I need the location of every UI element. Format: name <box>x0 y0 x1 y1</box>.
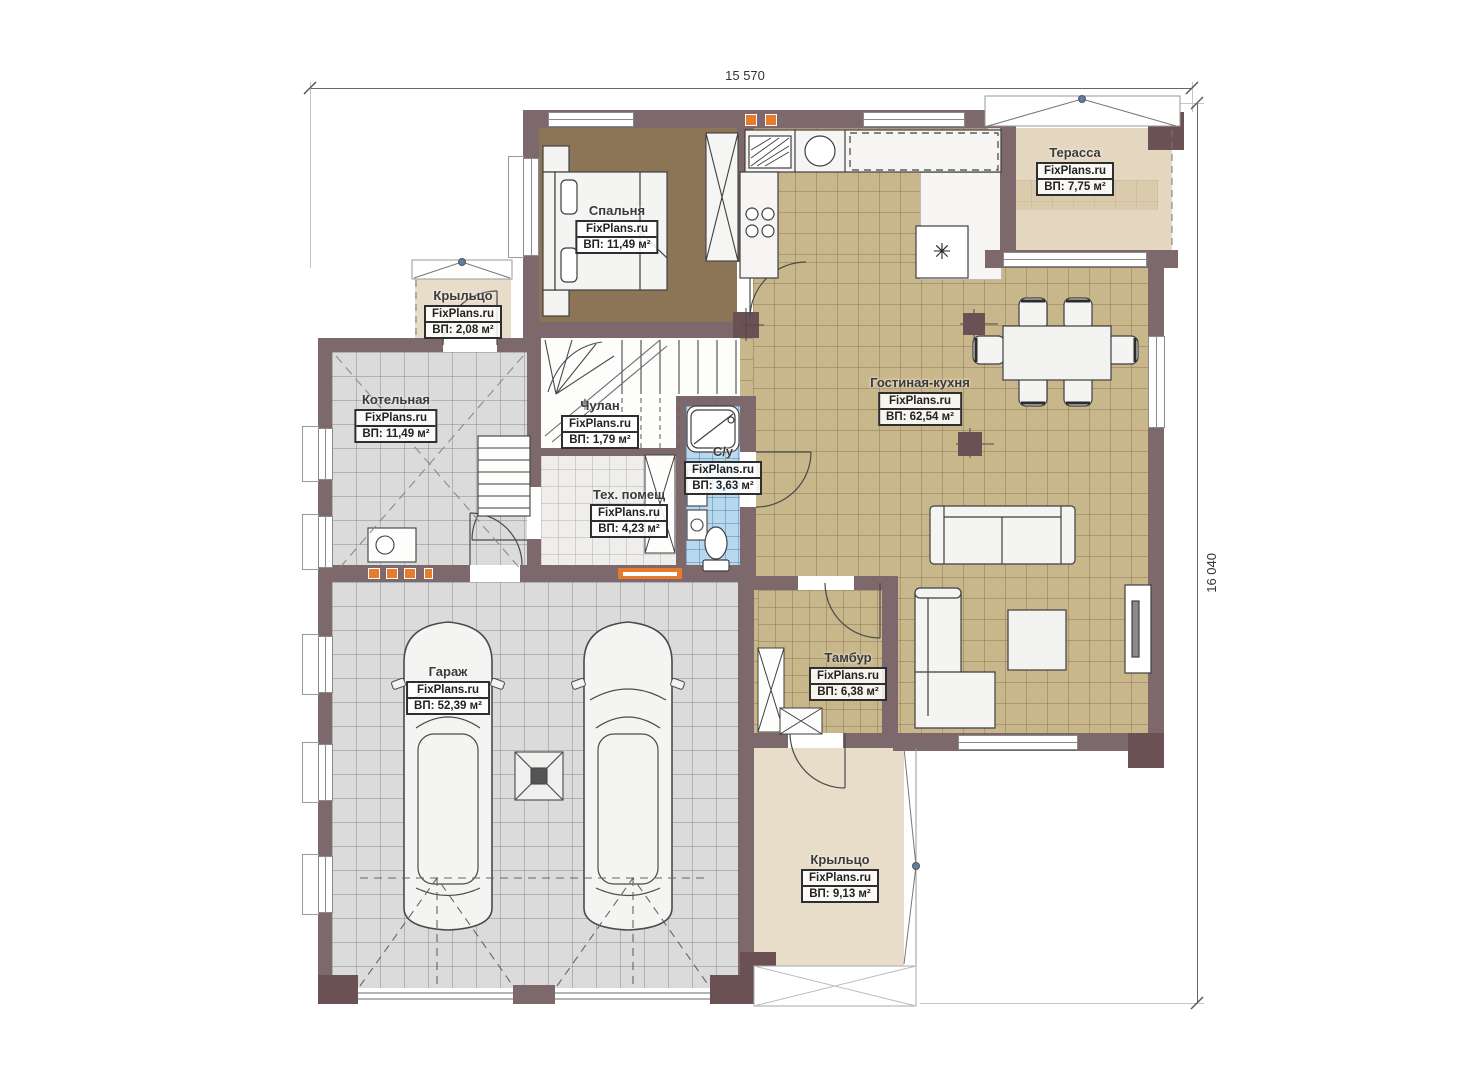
column-post <box>963 313 985 335</box>
room-name: Гараж <box>406 664 490 679</box>
wall-boiler-right <box>527 338 541 578</box>
fireplace-symbol: ✳ <box>916 226 968 278</box>
window-sill <box>508 156 524 258</box>
garage-gate-opening-1 <box>358 988 513 1004</box>
door-opening-entry <box>788 733 843 748</box>
room-area: ВП: 1,79 м² <box>563 431 637 447</box>
room-name: Котельная <box>354 392 437 407</box>
label-terrace: Терасса FixPlans.ru ВП: 7,75 м² <box>1036 145 1114 196</box>
room-info-box: FixPlans.ru ВП: 6,38 м² <box>809 667 887 701</box>
door-opening-garage <box>470 565 520 582</box>
room-area: ВП: 6,38 м² <box>811 683 885 699</box>
dimension-extension <box>920 1003 1204 1004</box>
porch-left-roof-icon <box>412 259 512 280</box>
radiator-accent <box>424 568 433 579</box>
window-bedroom-top <box>548 112 634 127</box>
room-info-box: FixPlans.ru ВП: 3,63 м² <box>684 461 762 495</box>
room-area: ВП: 52,39 м² <box>408 697 488 713</box>
window-sill <box>302 854 319 915</box>
window-boiler-1 <box>318 428 333 480</box>
brand-watermark: FixPlans.ru <box>426 307 500 321</box>
label-closet: Чулан FixPlans.ru ВП: 1,79 м² <box>561 398 639 449</box>
room-area: ВП: 3,63 м² <box>686 477 760 493</box>
column <box>318 975 358 1004</box>
garage-pier <box>513 985 555 1004</box>
brand-watermark: FixPlans.ru <box>592 506 666 520</box>
dimension-height-label: 16 040 <box>1204 553 1219 593</box>
dimension-extension <box>1192 82 1193 112</box>
window-garage-1 <box>318 636 333 693</box>
dimension-extension <box>310 82 311 268</box>
room-info-box: FixPlans.ru ВП: 7,75 м² <box>1036 162 1114 196</box>
label-living-kitchen: Гостиная-кухня FixPlans.ru ВП: 62,54 м² <box>870 375 970 426</box>
room-info-box: FixPlans.ru ВП: 4,23 м² <box>590 504 668 538</box>
wall-bathroom-top <box>676 396 750 406</box>
room-name: Гостиная-кухня <box>870 375 970 390</box>
room-name: Тамбур <box>809 650 887 665</box>
window-boiler-2 <box>318 516 333 568</box>
radiator-accent <box>404 568 416 579</box>
vent-accent <box>765 114 777 126</box>
door-opening-porch-left <box>443 338 497 352</box>
brand-watermark: FixPlans.ru <box>356 411 435 425</box>
radiator-bar-accent <box>618 568 682 579</box>
room-area: ВП: 9,13 м² <box>803 885 877 901</box>
wall-bedroom-bottom <box>523 322 741 338</box>
wall-living-right <box>1148 262 1164 748</box>
room-info-box: FixPlans.ru ВП: 9,13 м² <box>801 869 879 903</box>
window-sill <box>302 514 319 570</box>
door-opening-boiler <box>527 487 541 539</box>
radiator-accent <box>386 568 398 579</box>
radiator-accent <box>368 568 380 579</box>
room-info-box: FixPlans.ru ВП: 2,08 м² <box>424 305 502 339</box>
label-boiler: Котельная FixPlans.ru ВП: 11,49 м² <box>354 392 437 443</box>
door-opening-vestibule-top <box>798 576 854 590</box>
brand-watermark: FixPlans.ru <box>577 222 656 236</box>
boiler-floor <box>332 352 527 578</box>
window-living-bottom <box>958 735 1078 750</box>
room-name: Терасса <box>1036 145 1114 160</box>
room-info-box: FixPlans.ru ВП: 11,49 м² <box>575 220 658 254</box>
room-area: ВП: 11,49 м² <box>356 425 435 441</box>
column <box>1128 733 1164 768</box>
room-name: С/у <box>684 444 762 459</box>
room-name: Чулан <box>561 398 639 413</box>
column <box>710 975 754 1004</box>
room-info-box: FixPlans.ru ВП: 1,79 м² <box>561 415 639 449</box>
label-bedroom: Спальня FixPlans.ru ВП: 11,49 м² <box>575 203 658 254</box>
window-bedroom-left <box>523 158 539 256</box>
room-info-box: FixPlans.ru ВП: 52,39 м² <box>406 681 490 715</box>
window-sill <box>302 634 319 695</box>
label-bathroom: С/у FixPlans.ru ВП: 3,63 м² <box>684 444 762 495</box>
column <box>733 312 759 338</box>
window-living-right <box>1148 336 1165 428</box>
wall-boiler-top <box>318 338 540 352</box>
window-garage-2 <box>318 744 333 801</box>
wall-garage-right <box>738 565 754 1004</box>
window-sill <box>302 742 319 803</box>
garage-floor <box>332 582 738 988</box>
room-name: Крыльцо <box>801 852 879 867</box>
window-garage-3 <box>318 856 333 913</box>
brand-watermark: FixPlans.ru <box>803 871 877 885</box>
room-area: ВП: 11,49 м² <box>577 236 656 252</box>
brand-watermark: FixPlans.ru <box>563 417 637 431</box>
dimension-width-label: 15 570 <box>725 68 765 83</box>
room-name: Спальня <box>575 203 658 218</box>
room-area: ВП: 62,54 м² <box>880 408 960 424</box>
window-sill <box>302 426 319 482</box>
room-area: ВП: 2,08 м² <box>426 321 500 337</box>
room-info-box: FixPlans.ru ВП: 62,54 м² <box>878 392 962 426</box>
column <box>1148 112 1184 150</box>
room-name: Крыльцо <box>424 288 502 303</box>
brand-watermark: FixPlans.ru <box>408 683 488 697</box>
brand-watermark: FixPlans.ru <box>1038 164 1112 178</box>
window-terrace-doors <box>1003 252 1147 267</box>
label-porch-left: Крыльцо FixPlans.ru ВП: 2,08 м² <box>424 288 502 339</box>
label-garage: Гараж FixPlans.ru ВП: 52,39 м² <box>406 664 490 715</box>
column-post <box>958 432 982 456</box>
label-vestibule: Тамбур FixPlans.ru ВП: 6,38 м² <box>809 650 887 701</box>
wall-tech-top <box>541 448 676 456</box>
brand-watermark: FixPlans.ru <box>686 463 760 477</box>
room-info-box: FixPlans.ru ВП: 11,49 м² <box>354 409 437 443</box>
brand-watermark: FixPlans.ru <box>880 394 960 408</box>
floor-plan: ✳ <box>0 0 1473 1080</box>
stairs-floor <box>541 338 740 396</box>
room-area: ВП: 4,23 м² <box>592 520 666 536</box>
label-tech: Тех. помещ FixPlans.ru ВП: 4,23 м² <box>590 487 668 538</box>
wall-kitchen-terrace <box>1000 110 1016 268</box>
dimension-line-top <box>310 88 1192 89</box>
wall-bedroom-kitchen <box>737 128 753 262</box>
room-name: Тех. помещ <box>590 487 668 502</box>
window-kitchen-top <box>863 112 965 127</box>
label-porch-main: Крыльцо FixPlans.ru ВП: 9,13 м² <box>801 852 879 903</box>
room-area: ВП: 7,75 м² <box>1038 178 1112 194</box>
garage-gate-opening-2 <box>555 988 710 1004</box>
dimension-extension <box>1160 103 1204 104</box>
brand-watermark: FixPlans.ru <box>811 669 885 683</box>
vent-accent <box>745 114 757 126</box>
dimension-line-right <box>1197 103 1198 1003</box>
